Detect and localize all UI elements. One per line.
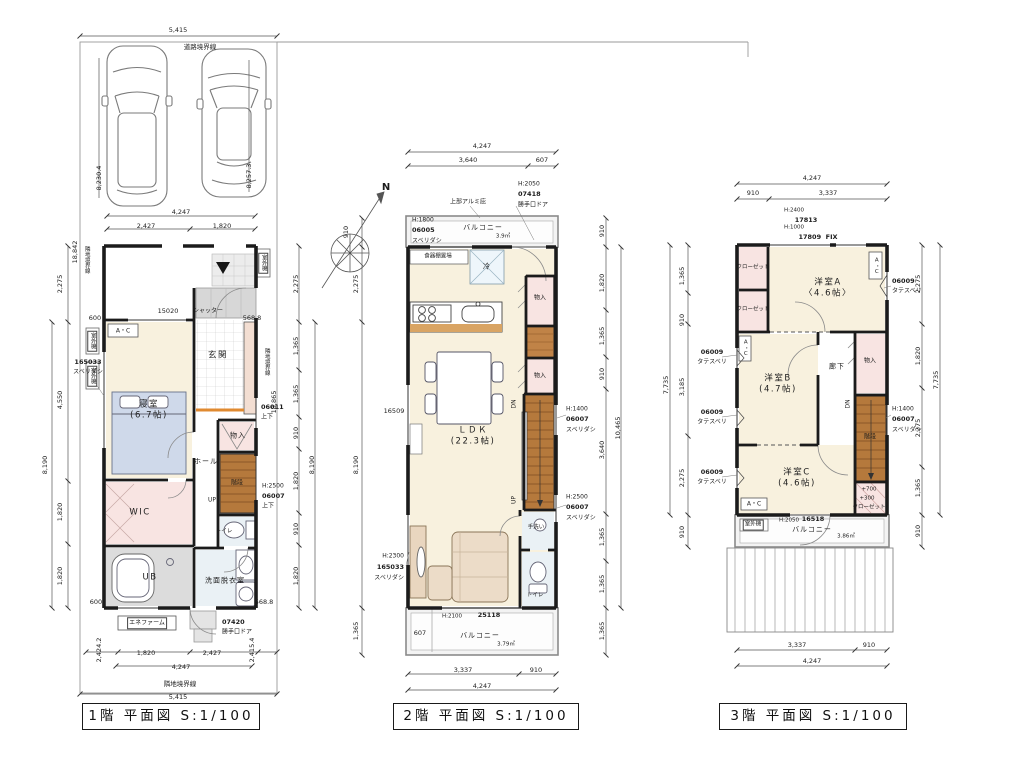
floor-plan-sheet: { "titles": { "floor1": "1階 平面図 S:1/100"… bbox=[0, 0, 1024, 768]
window-height: H:2050 bbox=[779, 518, 799, 525]
dim: 1,820 bbox=[598, 274, 606, 293]
boundary-depth-left: 18,842 bbox=[71, 241, 79, 264]
dim: 1,365 bbox=[598, 575, 606, 594]
door-type: 勝手口ドア bbox=[222, 628, 252, 636]
dim: 910 bbox=[678, 314, 686, 326]
window-code: 165033 bbox=[377, 563, 404, 571]
dim: 1,365 bbox=[292, 385, 300, 404]
dim: 3,337 bbox=[454, 666, 473, 674]
dim: 2,275 bbox=[56, 275, 64, 294]
window-height: H:1000 bbox=[784, 225, 804, 232]
window-code: 06007 bbox=[892, 415, 915, 423]
room-corridor: 廊下 bbox=[829, 363, 845, 372]
window-type: タテスベリ bbox=[697, 358, 727, 366]
shutter-label: シャッター bbox=[193, 307, 223, 315]
balcony-area: 3.79㎡ bbox=[497, 642, 515, 649]
door-code: 07420 bbox=[222, 618, 245, 626]
window-height: H:2300 bbox=[382, 552, 404, 560]
dim-parking-width: 4,247 bbox=[172, 208, 191, 216]
dim: 1,365 bbox=[598, 528, 606, 547]
fridge-label: 冷 bbox=[483, 263, 491, 272]
window-type: スベリダシ bbox=[374, 574, 404, 582]
window-type: スベリダシ bbox=[892, 426, 922, 434]
stairs-dn: DN bbox=[844, 399, 852, 408]
room-entrance: 玄関 bbox=[208, 351, 228, 362]
stairs-up: UP bbox=[510, 496, 518, 504]
dim: 8,190 bbox=[308, 456, 316, 475]
level-mark: +700 bbox=[861, 487, 876, 494]
room-stairs: 階段 bbox=[231, 479, 243, 487]
dim: 3,185 bbox=[678, 378, 686, 397]
door-type: 勝手口ドア bbox=[518, 201, 548, 209]
dim: 8,190 bbox=[41, 456, 49, 475]
room-closet: 物入 bbox=[534, 372, 546, 380]
door-height: H:2050 bbox=[518, 180, 540, 188]
window-type: 上下 bbox=[261, 413, 273, 421]
dim: 3,337 bbox=[819, 189, 838, 197]
stairs-d n: DN bbox=[510, 399, 518, 408]
window-code: 06009 bbox=[701, 408, 724, 416]
dim: 2,275 bbox=[678, 469, 686, 488]
dim-parking-right: 1,820 bbox=[213, 222, 232, 230]
enefarm-label: エネファーム bbox=[127, 617, 167, 629]
dim: 1,365 bbox=[292, 337, 300, 356]
door-code: 07418 bbox=[518, 190, 541, 198]
room-closet: クローゼット bbox=[736, 307, 769, 314]
window-code: 06007 bbox=[262, 492, 285, 500]
window-code: 06009 bbox=[892, 277, 915, 285]
window-code: 16518 bbox=[802, 515, 825, 523]
window-type: タテスベリ bbox=[697, 418, 727, 426]
ac-label: A・C bbox=[116, 327, 130, 335]
dim: 2,275 bbox=[914, 275, 922, 294]
dim: 10,465 bbox=[614, 417, 622, 440]
dim: 607 bbox=[536, 156, 548, 164]
room-bedroom-a: 洋室A 〈4.6帖〉 bbox=[804, 277, 852, 298]
floor3-title: 3階 平面図 S:1/100 bbox=[719, 703, 907, 730]
dim: 1,365 bbox=[914, 479, 922, 498]
cupboard-label: 食器棚置場 bbox=[424, 254, 452, 261]
room-balcony: バルコニー bbox=[463, 224, 503, 233]
room-ldk: ＬＤＫ (22.3帖) bbox=[451, 425, 496, 446]
room-bedroom-c: 洋室C (4.6帖) bbox=[778, 467, 816, 488]
dim-car1-length: 8,230.4 bbox=[95, 166, 103, 191]
dim: 910 bbox=[598, 225, 606, 237]
room-wic: WIC bbox=[129, 508, 150, 519]
window-code: 06007 bbox=[566, 415, 589, 423]
outdoor-unit-label: 室外機 bbox=[87, 331, 97, 352]
dim: 910 bbox=[342, 226, 350, 238]
dim: 4,247 bbox=[803, 657, 822, 665]
window-code: 17809 FIX bbox=[798, 233, 837, 241]
room-washstand: 手洗い bbox=[528, 525, 545, 532]
dim: 1,820 bbox=[914, 347, 922, 366]
room-toilet: トイレ bbox=[216, 529, 233, 536]
outdoor-unit-label: 室外機 bbox=[258, 253, 268, 274]
window-code: 06007 bbox=[566, 503, 589, 511]
window-type: スベリダシ bbox=[566, 514, 596, 522]
window-code: 06009 bbox=[701, 348, 724, 356]
ac-label: A・C bbox=[742, 339, 748, 357]
window-code: 06005 bbox=[412, 226, 435, 234]
dim: 7,735 bbox=[662, 376, 670, 395]
boundary-label-right: 隣地境界線 bbox=[263, 348, 269, 376]
dim: 910 bbox=[678, 526, 686, 538]
dim: 910 bbox=[914, 525, 922, 537]
window-code: 06009 bbox=[701, 468, 724, 476]
dim: 1,365 bbox=[598, 327, 606, 346]
room-washroom: 洗面脱衣室 bbox=[205, 577, 245, 586]
dim: 3,640 bbox=[598, 441, 606, 460]
ac-label: A・C bbox=[873, 257, 879, 275]
ac-label: A・C bbox=[747, 500, 761, 508]
balcony-area: 3.9㎡ bbox=[496, 234, 510, 241]
stairs-up: UP bbox=[208, 496, 216, 504]
window-type: 上下 bbox=[262, 502, 274, 510]
dim: 8,190 bbox=[352, 456, 360, 475]
dim: 2,424.2 bbox=[95, 638, 103, 663]
dim: 910 bbox=[598, 368, 606, 380]
balcony-area: 3.86㎡ bbox=[837, 534, 855, 541]
dim: 1,820 bbox=[56, 567, 64, 586]
room-closet: 物入 bbox=[864, 357, 876, 365]
dim: 2,427 bbox=[203, 649, 222, 657]
room-toilet: トイレ bbox=[527, 593, 544, 600]
label-layer: 5,415道路境界線8,230.48,257.34,2472,4271,8201… bbox=[0, 0, 1024, 768]
window-height: H:2400 bbox=[784, 208, 804, 215]
window-type: スベリダシ bbox=[566, 426, 596, 434]
room-bedroom-b: 洋室B (4.7帖) bbox=[759, 373, 797, 394]
dim: 910 bbox=[530, 666, 542, 674]
dim: 607 bbox=[414, 629, 426, 637]
room-bath: UB bbox=[142, 573, 157, 584]
dim: 4,247 bbox=[172, 663, 191, 671]
dim: 4,247 bbox=[473, 682, 492, 690]
window-height: H:2100 bbox=[442, 614, 462, 621]
dim: 1,820 bbox=[137, 649, 156, 657]
dim: 568.8 bbox=[243, 314, 262, 322]
window-code: 25118 bbox=[478, 611, 501, 619]
dim-parking-left: 2,427 bbox=[137, 222, 156, 230]
window-type: スベリダシ bbox=[412, 237, 442, 245]
eave-label: 上部アルミ庇 bbox=[450, 198, 486, 206]
window-code: 17813 bbox=[795, 216, 818, 224]
room-hall: ホール bbox=[194, 458, 218, 467]
window-height: H:1400 bbox=[566, 405, 588, 413]
level-mark: +300 bbox=[859, 496, 874, 503]
dim-site-width-bottom: 5,415 bbox=[169, 693, 188, 701]
dim: 910 bbox=[292, 427, 300, 439]
window-height: H:2500 bbox=[262, 482, 284, 490]
dim: 7,735 bbox=[932, 371, 940, 390]
room-closet: クローゼット bbox=[736, 265, 769, 272]
dim: 4,247 bbox=[473, 142, 492, 150]
dim: 2,275 bbox=[352, 275, 360, 294]
window-type: スベリダシ bbox=[73, 368, 103, 376]
dim: 1,820 bbox=[292, 567, 300, 586]
room-closet: 物入 bbox=[230, 432, 246, 441]
floor1-title: 1階 平面図 S:1/100 bbox=[82, 703, 260, 730]
room-balcony: バルコニー bbox=[792, 526, 832, 535]
dim: 910 bbox=[292, 523, 300, 535]
dim: 3,337 bbox=[788, 641, 807, 649]
dim: 4,247 bbox=[803, 174, 822, 182]
dim: 1,820 bbox=[56, 503, 64, 522]
window-code: 165033 bbox=[74, 358, 101, 366]
outdoor-unit-label: 室外機 bbox=[743, 520, 764, 531]
boundary-label-bottom: 隣地境界線 bbox=[164, 680, 197, 688]
window-height: H:1800 bbox=[412, 216, 434, 224]
dim: 1,365 bbox=[598, 622, 606, 641]
window-type: タテスベリ bbox=[697, 478, 727, 486]
dim: 600 bbox=[90, 598, 102, 606]
boundary-label-left: 隣地境界線 bbox=[83, 246, 89, 274]
window-code: 15020 bbox=[158, 307, 179, 315]
dim: 3,640 bbox=[459, 156, 478, 164]
dim: 1,365 bbox=[352, 622, 360, 641]
dim: 568.8 bbox=[255, 598, 274, 606]
window-code: 06011 bbox=[261, 403, 284, 411]
dim-site-width-top: 5,415 bbox=[169, 26, 188, 34]
dim: 1,820 bbox=[292, 472, 300, 491]
floor2-title: 2階 平面図 S:1/100 bbox=[393, 703, 579, 730]
room-balcony: バルコニー bbox=[460, 632, 500, 641]
window-code: 16509 bbox=[384, 407, 405, 415]
room-closet: クローゼット bbox=[852, 505, 885, 512]
dim: 2,415.4 bbox=[248, 638, 256, 663]
window-height: H:1400 bbox=[892, 405, 914, 413]
road-boundary-label: 道路境界線 bbox=[184, 43, 217, 51]
room-stairs: 階段 bbox=[864, 433, 876, 441]
dim: 2,275 bbox=[292, 275, 300, 294]
room-bedroom: 寝室 (6.7帖) bbox=[130, 399, 168, 420]
dim: 910 bbox=[863, 641, 875, 649]
dim: 1,365 bbox=[678, 267, 686, 286]
dim: 4,550 bbox=[56, 391, 64, 410]
room-closet: 物入 bbox=[534, 294, 546, 302]
dim: 910 bbox=[747, 189, 759, 197]
window-height: H:2500 bbox=[566, 493, 588, 501]
dim-car2-length: 8,257.3 bbox=[245, 164, 253, 189]
north-label: N bbox=[382, 182, 390, 195]
dim: 600 bbox=[89, 314, 101, 322]
